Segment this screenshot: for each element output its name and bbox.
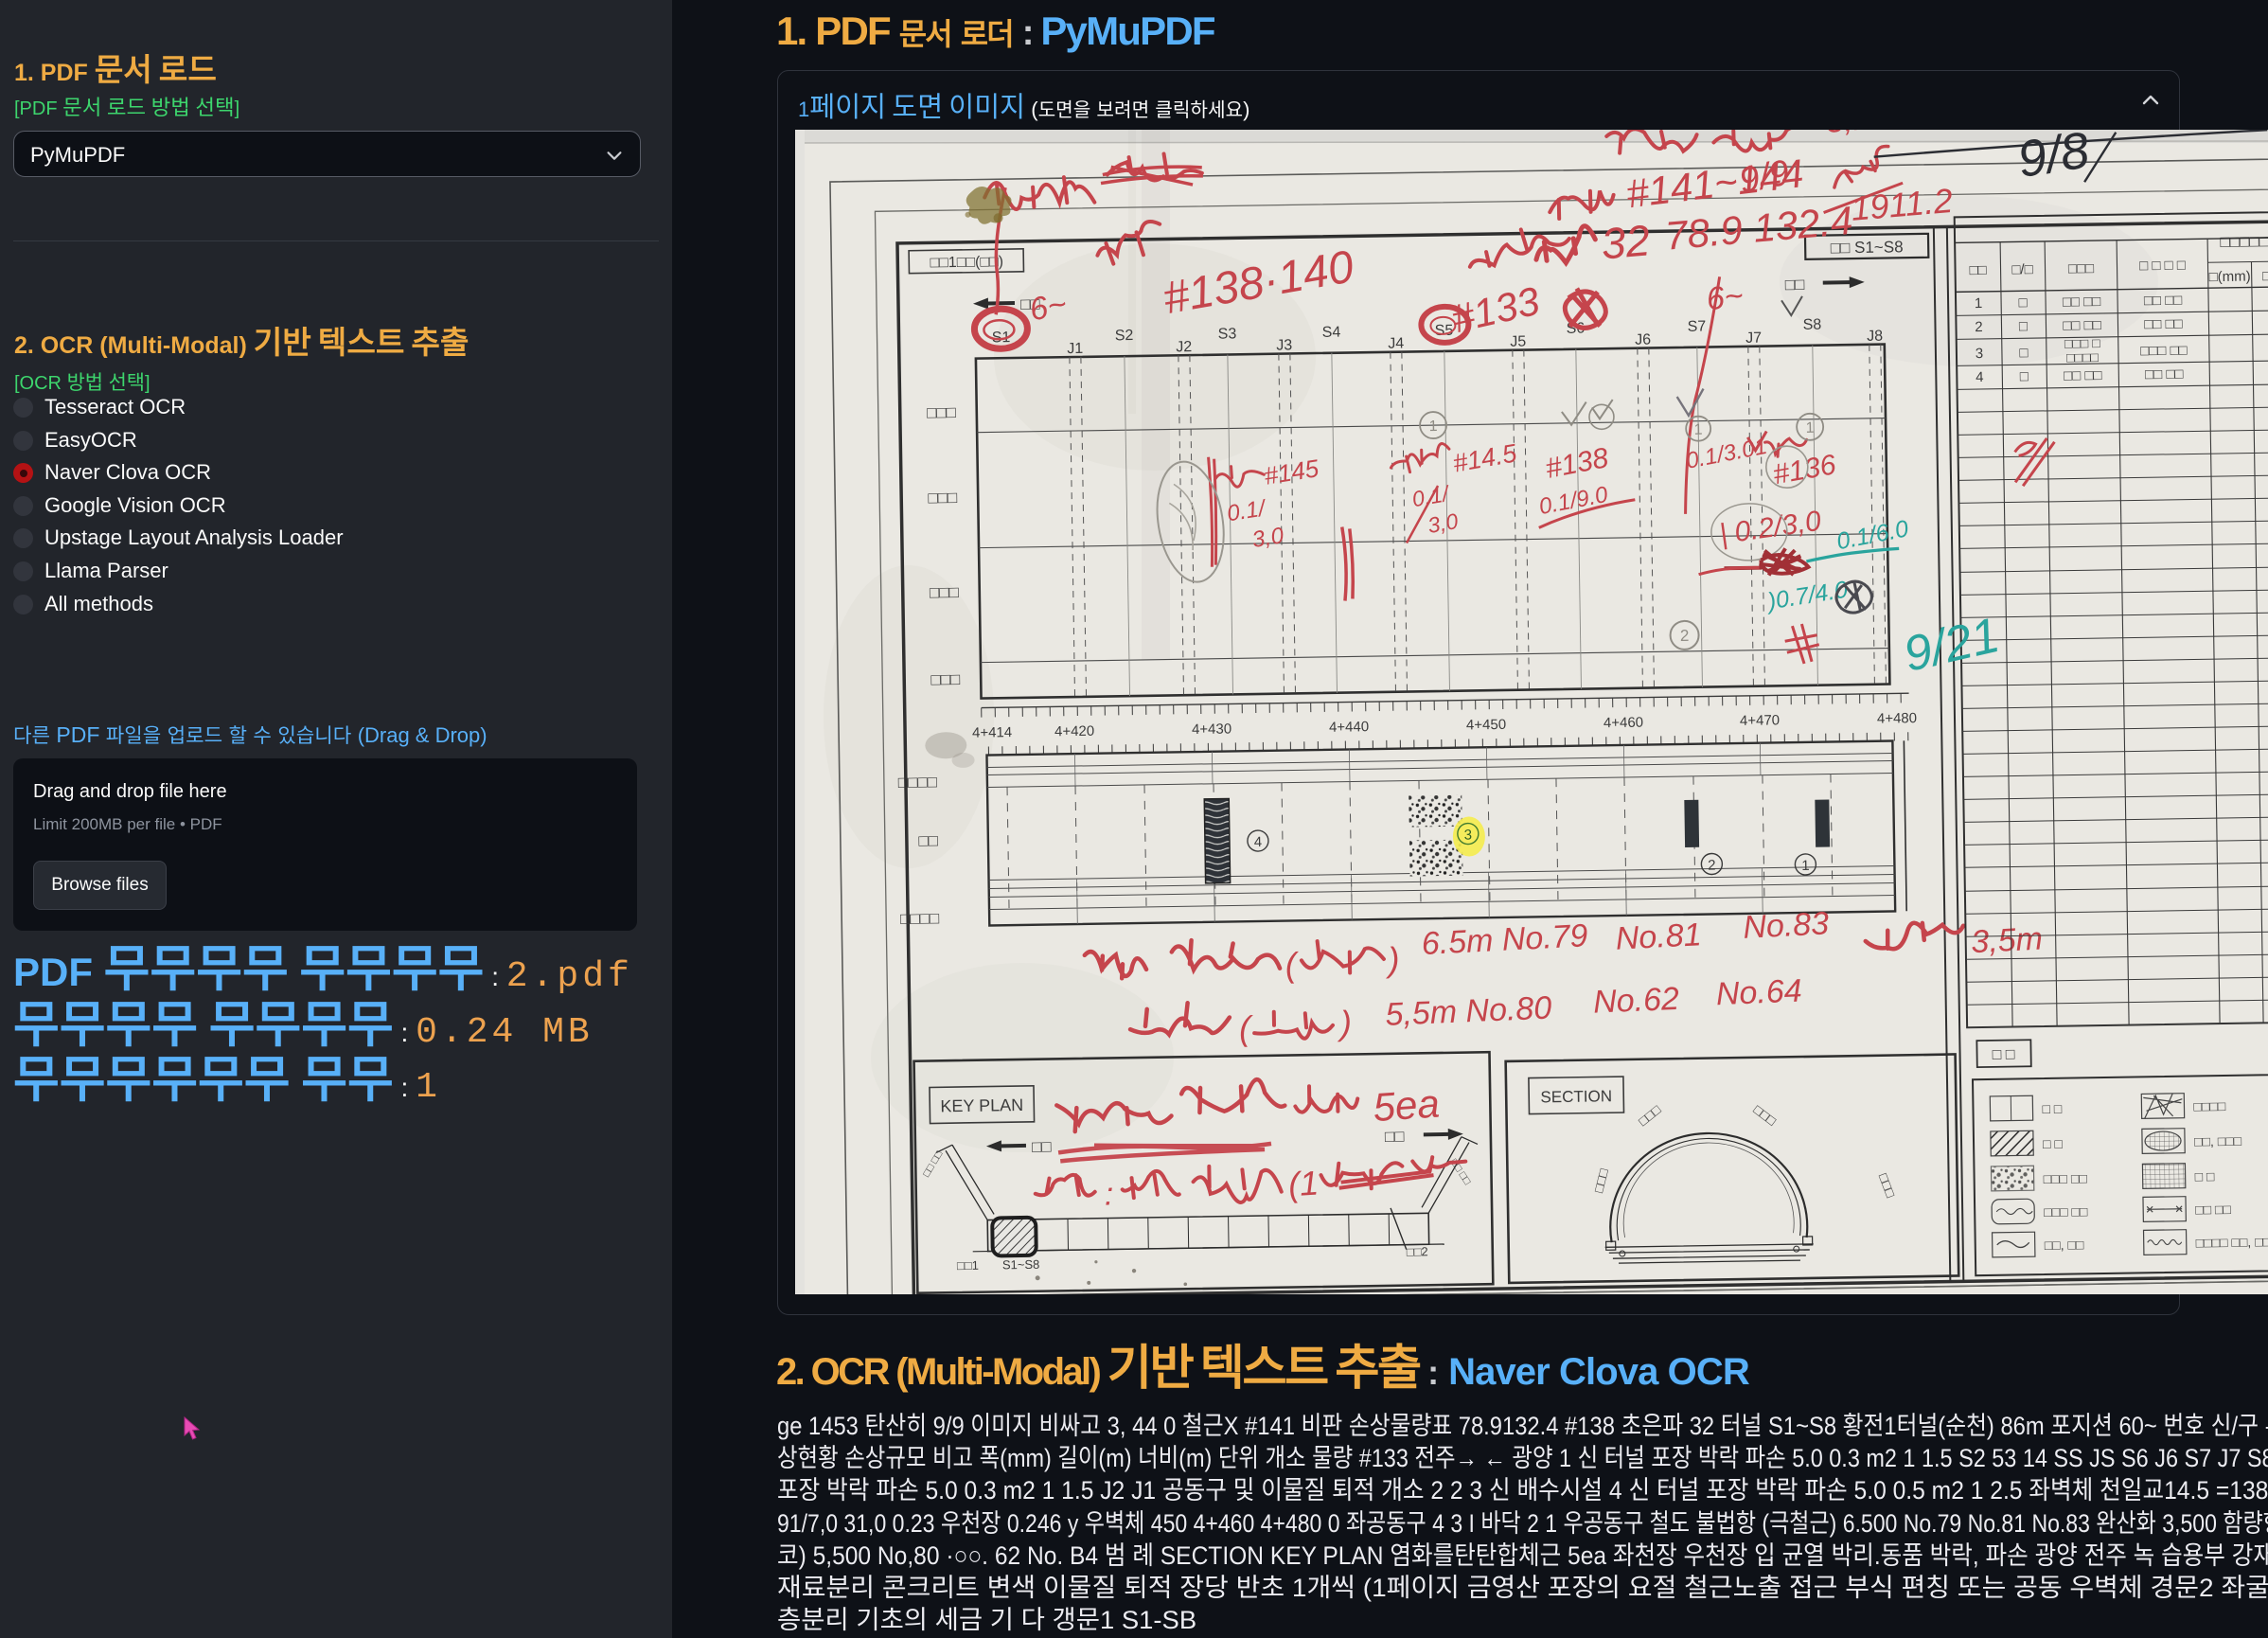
svg-text:32: 32 <box>1600 215 1652 268</box>
svg-text:SECTION: SECTION <box>1540 1087 1612 1106</box>
svg-text:□□□□: □□□□ <box>898 773 937 792</box>
svg-text:4+420: 4+420 <box>1054 723 1094 740</box>
svg-text:S7: S7 <box>1688 319 1707 335</box>
svg-text:J7: J7 <box>1745 330 1762 347</box>
svg-text:□□: □□ <box>1032 1138 1052 1156</box>
svg-text:□: □ <box>2019 345 2028 361</box>
svg-text:□(mm): □(mm) <box>2209 268 2251 285</box>
svg-text:□□□ □□: □□□ □□ <box>2044 1170 2088 1186</box>
svg-text:No.62: No.62 <box>1592 981 1679 1021</box>
svg-text:3: 3 <box>1464 827 1473 843</box>
svg-text:□□□□: □□□□ <box>900 909 939 928</box>
svg-text:□□□: □□□ <box>928 489 957 507</box>
svg-text:3,0: 3,0 <box>1250 523 1286 553</box>
svg-text:(1: (1 <box>1287 1163 1320 1203</box>
svg-text:3: 3 <box>1976 346 1984 362</box>
svg-text:□□ □□: □□ □□ <box>2063 317 2101 334</box>
svg-text:No.83: No.83 <box>1742 905 1830 946</box>
svg-text:□ □: □ □ <box>2195 1168 2216 1184</box>
svg-text:J5: J5 <box>1510 334 1526 350</box>
svg-text:□□□ □□: □□□ □□ <box>2140 343 2188 360</box>
svg-text:□□ □□: □□ □□ <box>2064 367 2102 384</box>
svg-text:□□□□: □□□□ <box>2193 1098 2226 1114</box>
svg-text:□□□□ □□, □□□: □□□□ □□, □□□ <box>2196 1234 2268 1250</box>
svg-text:□□, □□: □□, □□ <box>2045 1237 2084 1253</box>
svg-text:S8: S8 <box>1803 317 1822 333</box>
svg-text:□□: □□ <box>1785 276 1805 294</box>
svg-text:J2: J2 <box>1176 339 1192 355</box>
svg-text:No.81: No.81 <box>1615 917 1703 957</box>
svg-text:□□□□: □□□□ <box>2066 349 2100 365</box>
svg-text:□□, □□□: □□, □□□ <box>2194 1133 2242 1149</box>
svg-text:□: □ <box>2018 294 2027 311</box>
svg-text:□□□□□: □□□□□ <box>2220 232 2268 251</box>
svg-text:4+470: 4+470 <box>1740 712 1780 729</box>
svg-text:S2: S2 <box>1115 328 1134 344</box>
svg-text:1: 1 <box>1975 295 1983 312</box>
svg-text:□ □: □ □ <box>1993 1046 2015 1062</box>
svg-text:□: □ <box>2019 318 2028 334</box>
svg-text:□□1: □□1 <box>957 1258 979 1273</box>
svg-text:□□ □□: □□ □□ <box>2145 366 2184 383</box>
svg-text:□□□ □□: □□□ □□ <box>2044 1203 2088 1220</box>
svg-text:□□: □□ <box>1969 262 1986 278</box>
svg-text:□□□: □□□ <box>927 403 956 421</box>
svg-text:S4: S4 <box>1322 325 1341 341</box>
svg-text:3,5m: 3,5m <box>1970 920 2043 960</box>
svg-text:4+430: 4+430 <box>1192 721 1231 738</box>
svg-text:□ □ □ □: □ □ □ □ <box>2139 258 2186 275</box>
svg-text:1: 1 <box>1801 858 1810 874</box>
svg-text:□□ □□: □□ □□ <box>2144 316 2183 333</box>
svg-text:J6: J6 <box>1635 331 1651 347</box>
svg-text:□□1□□(□□): □□1□□(□□) <box>930 254 1003 271</box>
svg-text:3,0: 3,0 <box>1426 508 1460 538</box>
svg-text:□□ □□: □□ □□ <box>2144 293 2183 310</box>
svg-text:□□ □□: □□ □□ <box>2063 294 2101 311</box>
svg-text:J1: J1 <box>1067 341 1083 357</box>
svg-text:S5: S5 <box>1435 323 1454 339</box>
svg-text:4: 4 <box>1976 369 1984 385</box>
svg-text:4+460: 4+460 <box>1604 715 1643 732</box>
svg-text:4+480: 4+480 <box>1877 710 1917 727</box>
svg-text:J8: J8 <box>1867 329 1883 345</box>
svg-text:S1~S8: S1~S8 <box>1002 1257 1040 1273</box>
svg-text:J4: J4 <box>1388 336 1404 352</box>
svg-text:2: 2 <box>1708 857 1716 873</box>
svg-text:□□ □□: □□ □□ <box>2195 1202 2232 1218</box>
svg-text:□/□: □/□ <box>2011 261 2033 277</box>
svg-text:4+440: 4+440 <box>1329 719 1369 736</box>
svg-text:□□□: □□□ <box>2068 260 2094 276</box>
svg-text:□□(: □□( <box>2262 268 2268 284</box>
svg-text:□□: □□ <box>918 831 938 849</box>
svg-text:1: 1 <box>1806 420 1815 436</box>
svg-text:4+450: 4+450 <box>1466 717 1506 734</box>
svg-text:4+414: 4+414 <box>972 724 1012 741</box>
svg-text:□: □ <box>2020 368 2029 384</box>
svg-text:4: 4 <box>1254 834 1263 850</box>
svg-text:□ □: □ □ <box>2042 1101 2063 1116</box>
svg-text:5ea: 5ea <box>1372 1080 1441 1130</box>
svg-text:□□□: □□□ <box>930 670 960 688</box>
svg-text:□ □: □ □ <box>2043 1136 2064 1151</box>
svg-text:1: 1 <box>1694 422 1703 438</box>
svg-text:J3: J3 <box>1276 337 1292 353</box>
svg-text:S3: S3 <box>1218 326 1237 342</box>
svg-text:6~: 6~ <box>1027 286 1070 329</box>
svg-text:6~: 6~ <box>1705 277 1745 317</box>
svg-text:□□□: □□□ <box>930 583 959 601</box>
svg-text:□□2: □□2 <box>1407 1244 1428 1258</box>
svg-text:2: 2 <box>1975 319 1983 335</box>
svg-text:2: 2 <box>1680 627 1690 645</box>
svg-text:No.64: No.64 <box>1715 972 1802 1012</box>
svg-text::: : <box>1104 1176 1113 1212</box>
svg-text:□□: □□ <box>1385 1128 1405 1146</box>
svg-text:5,5m No.80: 5,5m No.80 <box>1385 990 1552 1033</box>
svg-text:1: 1 <box>1429 418 1438 435</box>
svg-text:KEY PLAN: KEY PLAN <box>940 1095 1023 1115</box>
